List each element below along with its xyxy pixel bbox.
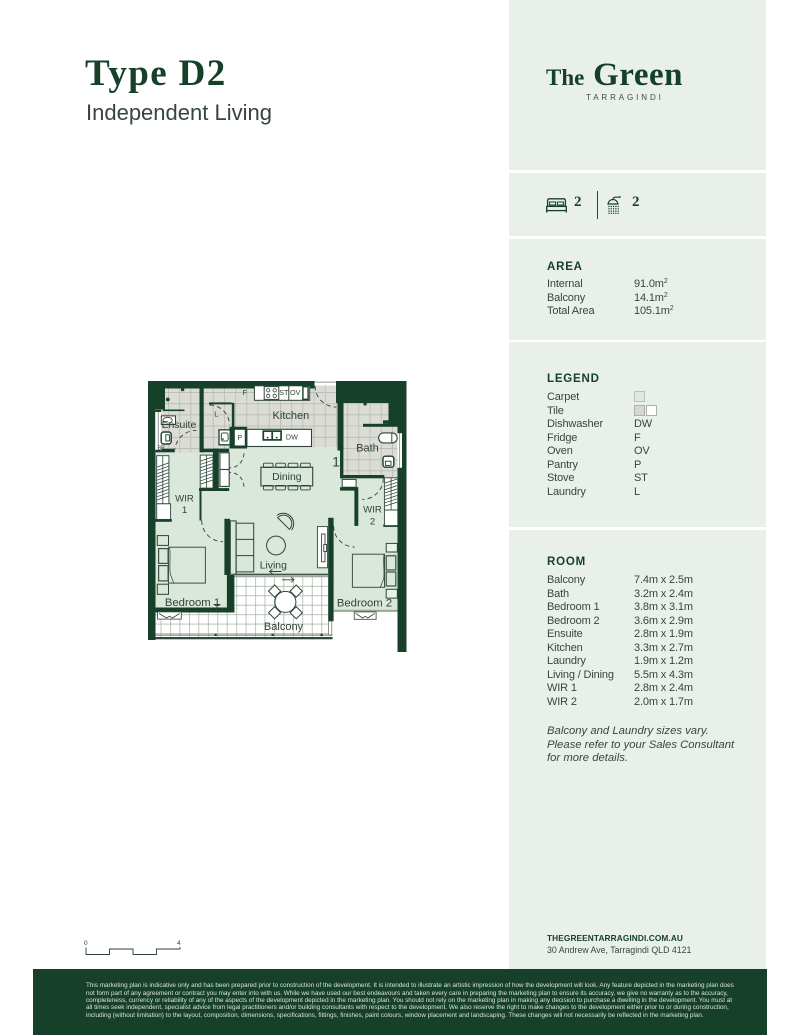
svg-text:WIR: WIR [363, 505, 382, 516]
svg-text:WIR: WIR [175, 494, 194, 505]
svg-text:2: 2 [370, 517, 375, 528]
svg-text:Bedroom 1: Bedroom 1 [165, 597, 220, 609]
svg-text:F: F [243, 388, 248, 397]
svg-text:P: P [237, 433, 242, 442]
svg-text:Bath: Bath [356, 443, 379, 455]
svg-text:ST: ST [279, 388, 289, 397]
svg-text:Ensuite: Ensuite [162, 420, 197, 431]
svg-text:1: 1 [332, 454, 340, 470]
svg-text:1: 1 [182, 505, 187, 516]
svg-text:L: L [214, 410, 218, 419]
svg-text:Balcony: Balcony [264, 621, 304, 633]
svg-text:BR: BR [158, 445, 165, 451]
svg-text:Kitchen: Kitchen [273, 410, 310, 422]
svg-text:Bedroom 2: Bedroom 2 [337, 598, 392, 610]
svg-text:DW: DW [286, 432, 298, 441]
svg-text:Dining: Dining [272, 472, 302, 483]
svg-text:OV: OV [290, 388, 301, 397]
svg-text:Living: Living [260, 561, 287, 572]
